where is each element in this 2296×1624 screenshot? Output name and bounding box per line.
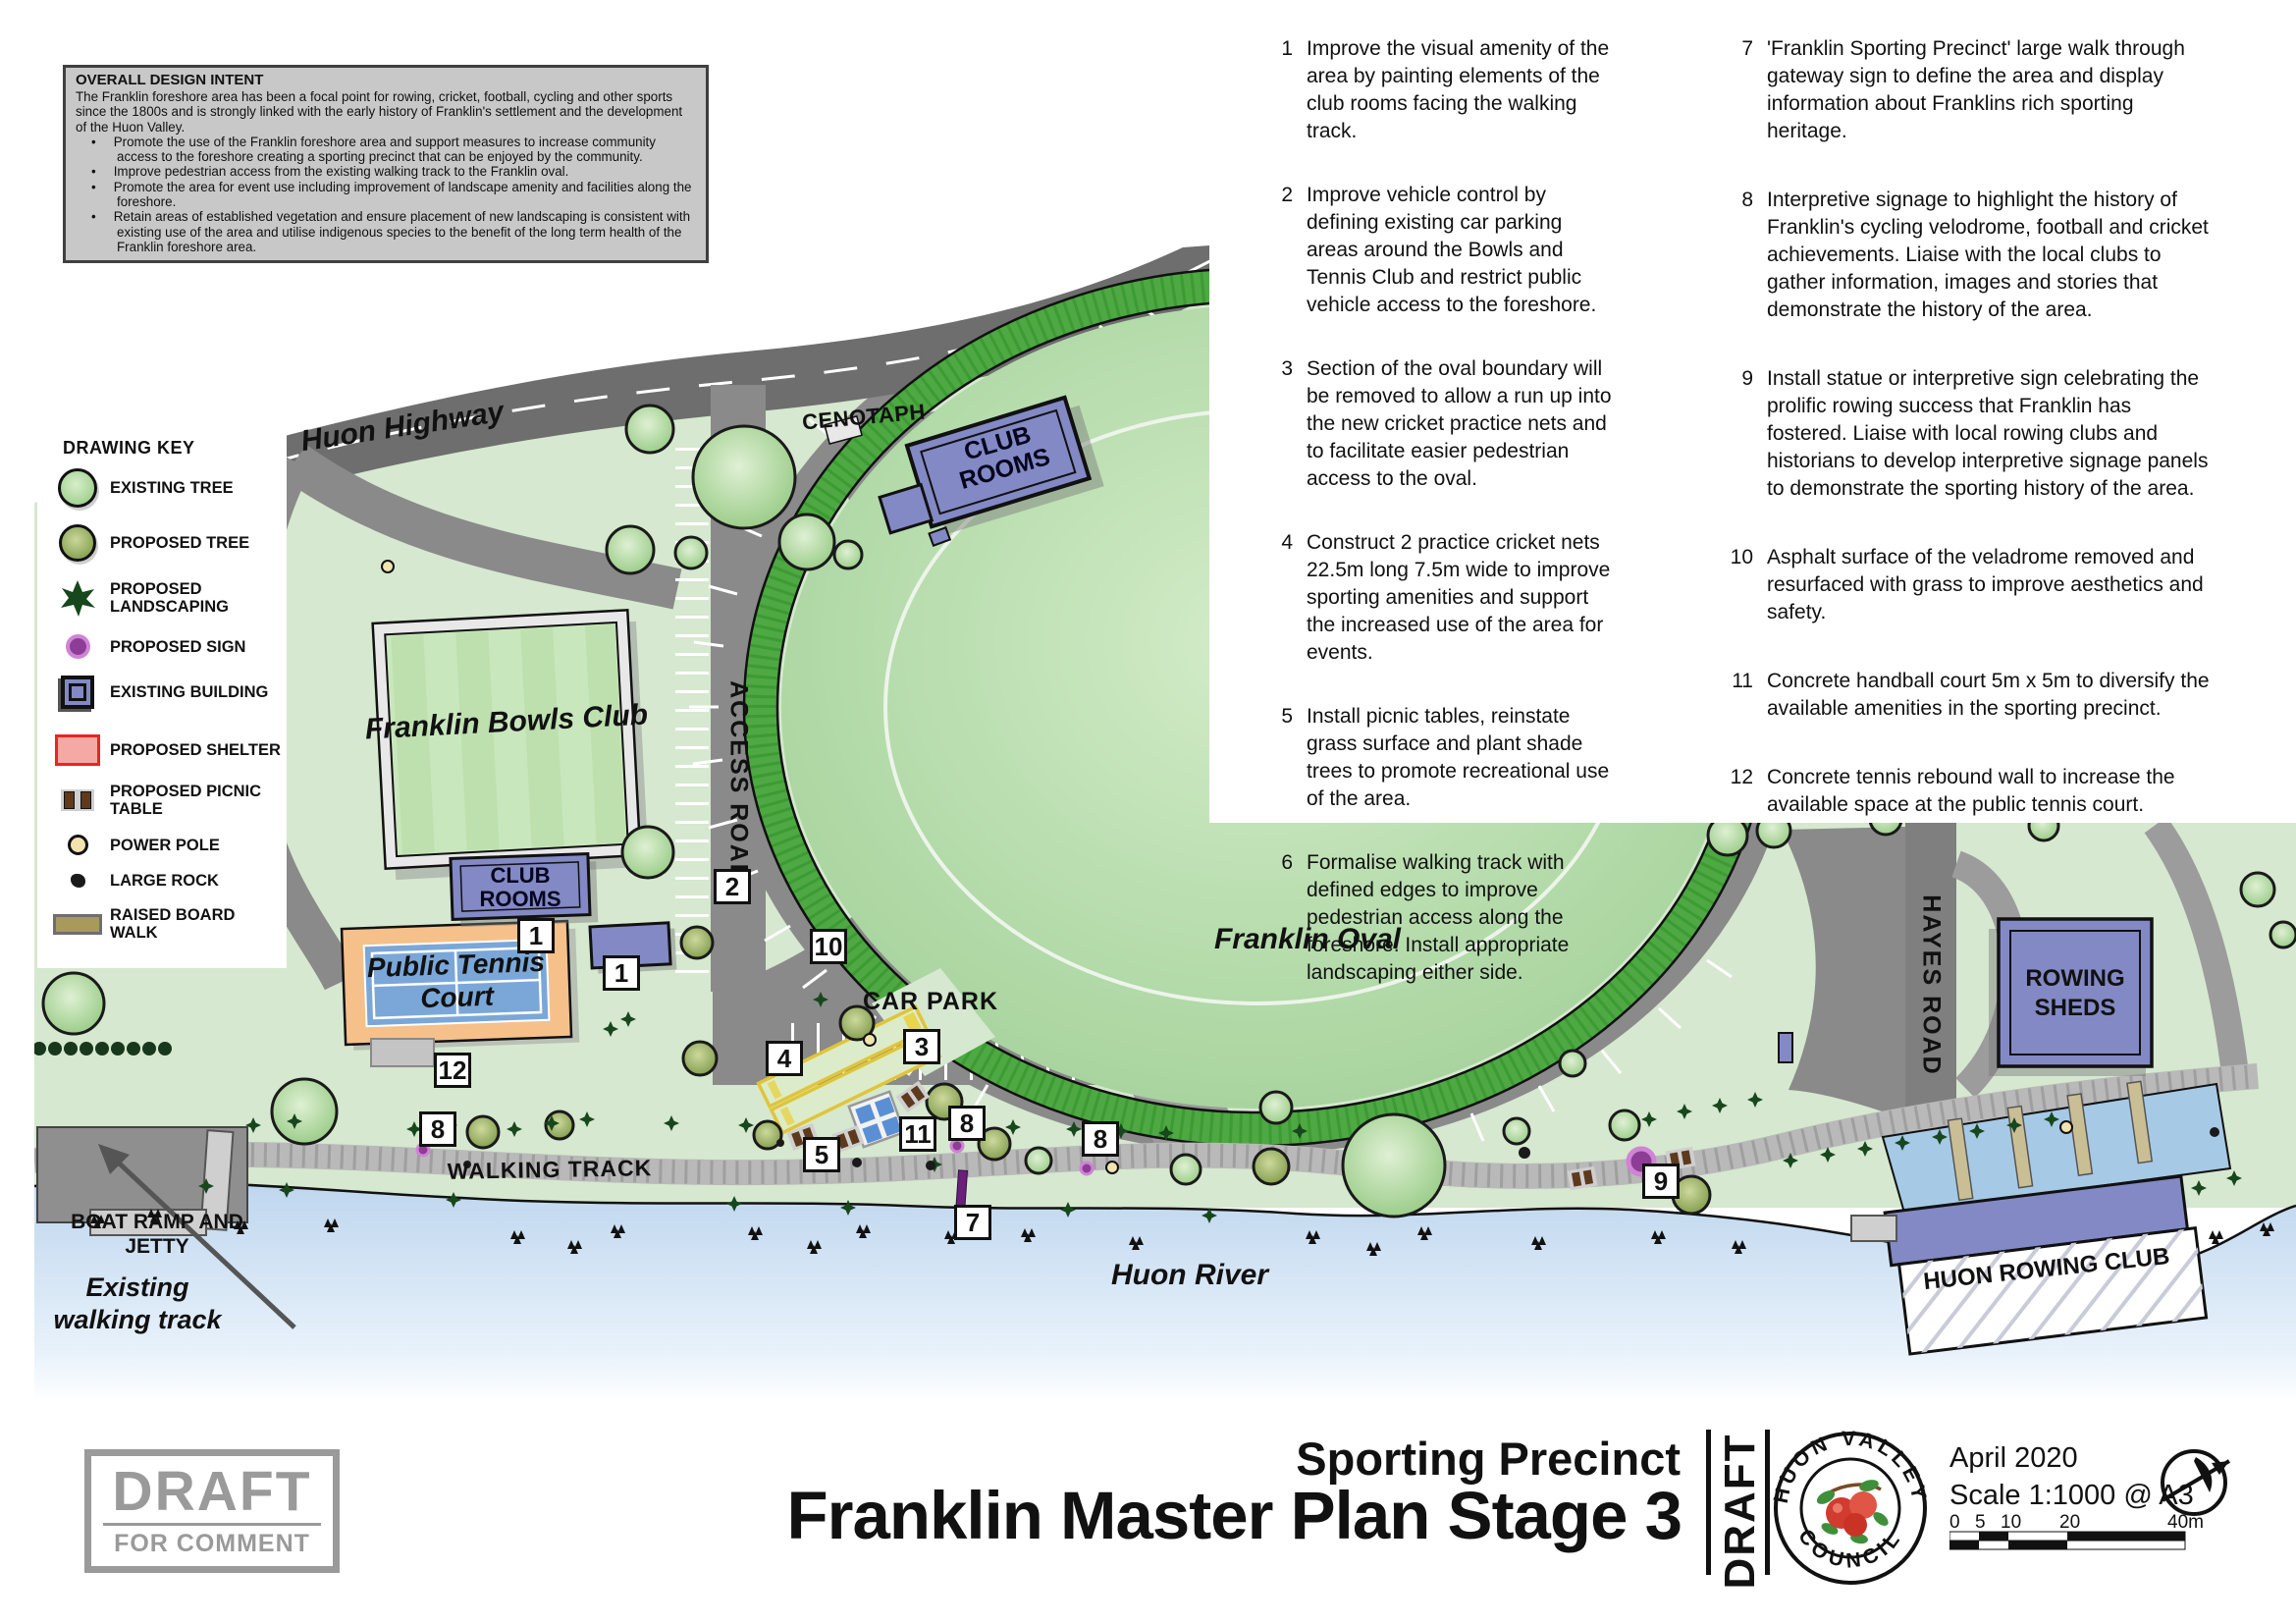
map-marker-2: 2 (714, 869, 751, 904)
walking-track-label: WALKING TRACK (402, 1154, 697, 1185)
proposed-sign-icon (66, 634, 90, 659)
action-item-9: 9Install statue or interpretive sign cel… (1720, 365, 2211, 503)
design-intent-bullet: Retain areas of established vegetation a… (76, 209, 696, 254)
proposed-landscaping-icon (58, 578, 97, 618)
vertical-draft-label: DRAFT (1716, 1428, 1765, 1595)
key-row-proposed-landscaping: PROPOSED LANDSCAPING (45, 578, 287, 618)
scale-tick-5: 5 (1975, 1514, 1986, 1533)
proposed-shelter-icon (55, 734, 100, 766)
design-intent-bullet: Promote the use of the Franklin foreshor… (76, 135, 696, 165)
club-rooms-bowls-label: CLUB ROOMS (447, 864, 594, 911)
action-item-2: 2Improve vehicle control by defining exi… (1259, 182, 1615, 319)
action-item-1: 1Improve the visual amenity of the area … (1259, 35, 1615, 145)
key-row-power-pole: POWER POLE (45, 835, 287, 855)
action-item-6: 6Formalise walking track with defined ed… (1259, 849, 1615, 987)
design-intent-bullets: Promote the use of the Franklin foreshor… (76, 135, 696, 254)
design-intent-bullet: Improve pedestrian access from the exist… (76, 164, 696, 179)
stamp-comment-text: FOR COMMENT (95, 1530, 329, 1558)
public-tennis-court-label: Public Tennis Court (338, 945, 575, 1017)
action-item-3: 3Section of the oval boundary will be re… (1259, 355, 1615, 493)
franklin-oval-label: Franklin Oval (1209, 921, 1406, 957)
huon-river-label: Huon River (1092, 1259, 1288, 1292)
map-marker-9: 9 (1642, 1164, 1680, 1199)
rowing-sheds-label: ROWING SHEDS (1997, 964, 2154, 1023)
action-item-12: 12Concrete tennis rebound wall to increa… (1720, 764, 2211, 819)
key-row-proposed-shelter: PROPOSED SHELTER (45, 734, 287, 766)
key-row-proposed-picnic-table: PROPOSED PICNIC TABLE (45, 783, 287, 818)
draft-for-comment-stamp: DRAFT FOR COMMENT (84, 1449, 340, 1573)
car-park-label: CAR PARK (832, 988, 1029, 1016)
overall-design-intent-panel: OVERALL DESIGN INTENT The Franklin fores… (63, 65, 709, 263)
tennis-rebound-wall (371, 1039, 434, 1066)
map-marker-8b: 8 (948, 1106, 986, 1141)
raised-board-walk-icon (53, 914, 102, 935)
north-arrow-icon (2145, 1435, 2243, 1534)
drawing-key-panel: DRAWING KEY EXISTING TREE PROPOSED TREE … (37, 432, 287, 968)
title-divider-left (1706, 1430, 1711, 1575)
map-marker-8c: 8 (1082, 1121, 1119, 1157)
action-items-column-2: 7'Franklin Sporting Precinct' large walk… (1720, 35, 2211, 860)
map-marker-12: 12 (434, 1053, 471, 1088)
proposed-picnic-table-icon (61, 789, 94, 811)
map-marker-4: 4 (766, 1041, 803, 1076)
power-pole-icon (68, 835, 88, 855)
action-item-8: 8Interpretive signage to highlight the h… (1720, 187, 2211, 324)
key-row-raised-board-walk: RAISED BOARD WALK (45, 906, 287, 942)
existing-tree-icon (58, 468, 97, 508)
key-row-proposed-tree: PROPOSED TREE (45, 524, 287, 562)
title-divider-right (1765, 1430, 1770, 1575)
large-rock-icon (71, 874, 85, 888)
map-marker-3: 3 (903, 1029, 940, 1064)
key-row-proposed-sign: PROPOSED SIGN (45, 634, 287, 659)
key-row-existing-building: EXISTING BUILDING (45, 676, 287, 709)
huon-valley-council-logo: HUON VALLEY COUNCIL (1771, 1429, 1930, 1588)
hayes-road-label: HAYES ROAD (1917, 819, 1946, 1153)
scale-tick-0: 0 (1949, 1514, 1960, 1533)
action-item-4: 4Construct 2 practice cricket nets 22.5m… (1259, 529, 1615, 667)
design-intent-intro: The Franklin foreshore area has been a f… (76, 89, 696, 135)
scale-tick-20: 20 (2059, 1514, 2080, 1533)
map-marker-10: 10 (810, 929, 847, 964)
action-item-5: 5Install picnic tables, reinstate grass … (1259, 703, 1615, 813)
action-items-column-1: 1Improve the visual amenity of the area … (1259, 35, 1615, 1023)
action-item-10: 10Asphalt surface of the veladrome remov… (1720, 544, 2211, 626)
map-marker-7: 7 (954, 1205, 991, 1240)
action-item-11: 11Concrete handball court 5m x 5m to div… (1720, 668, 2211, 723)
map-marker-1: 1 (517, 918, 555, 953)
key-row-existing-tree: EXISTING TREE (45, 468, 287, 508)
map-marker-5: 5 (803, 1137, 840, 1172)
design-intent-bullet: Promote the area for event use including… (76, 180, 696, 210)
design-intent-title: OVERALL DESIGN INTENT (76, 72, 696, 88)
proposed-tree-icon (59, 524, 96, 562)
existing-walking-track-label: Existing walking track (39, 1272, 236, 1336)
small-building (1779, 1033, 1792, 1062)
scale-bar-segments (1949, 1532, 2185, 1549)
master-plan-page: OVERALL DESIGN INTENT The Franklin fores… (0, 0, 2296, 1624)
key-row-large-rock: LARGE ROCK (45, 872, 287, 890)
plan-title: Franklin Master Plan Stage 3 (442, 1477, 1682, 1554)
scale-tick-10: 10 (2001, 1514, 2021, 1533)
map-marker-11: 11 (899, 1116, 936, 1152)
map-marker-8a: 8 (419, 1111, 456, 1147)
action-item-7: 7'Franklin Sporting Precinct' large walk… (1720, 35, 2211, 145)
boat-ramp-and-jetty-label: BOAT RAMP AND JETTY (69, 1210, 245, 1259)
stamp-draft-text: DRAFT (95, 1462, 329, 1521)
existing-building-icon (61, 676, 94, 709)
map-marker-1b: 1 (603, 955, 640, 991)
access-road-label: ACCESS ROAD (724, 557, 753, 1008)
